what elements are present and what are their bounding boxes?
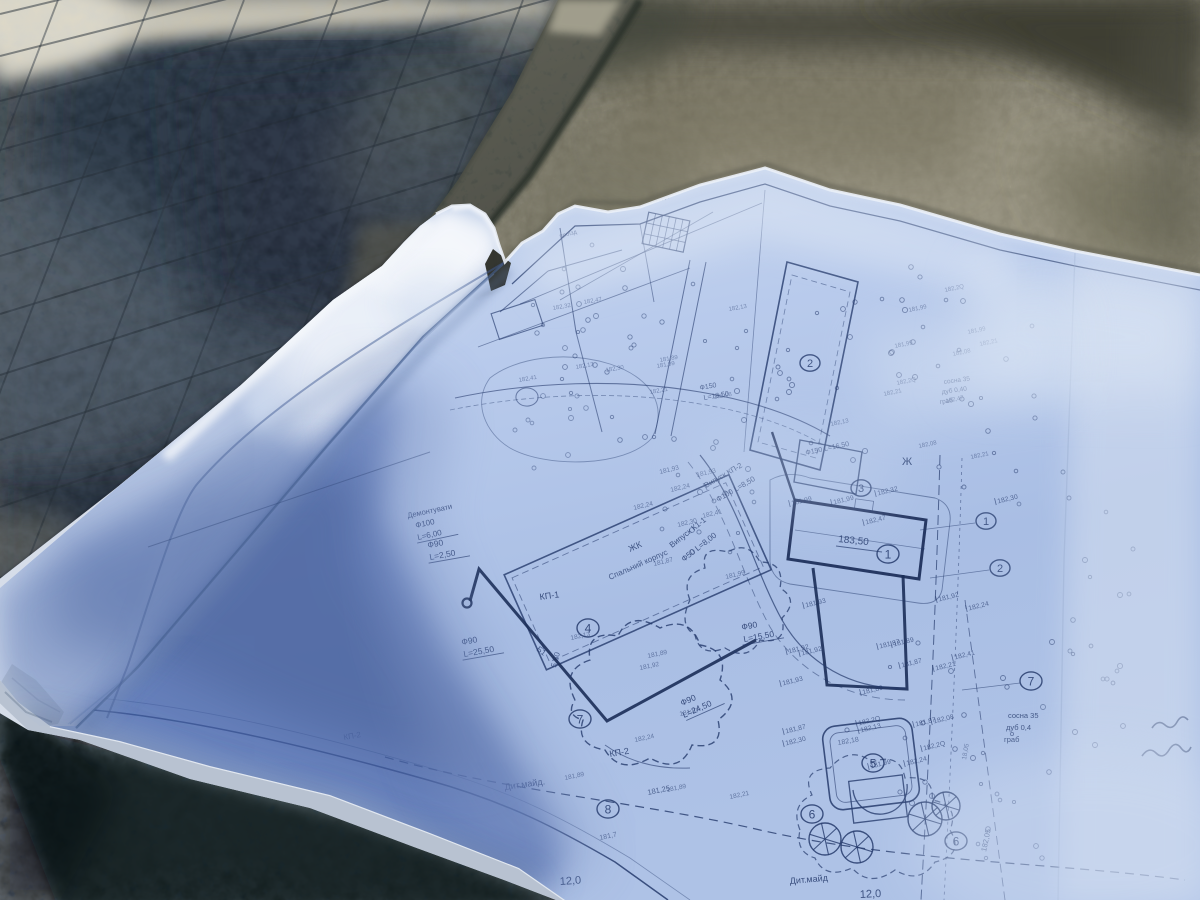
svg-text:граб: граб bbox=[1004, 735, 1019, 744]
svg-text:7: 7 bbox=[1028, 674, 1035, 688]
svg-text:2: 2 bbox=[807, 358, 813, 370]
svg-text:Ж: Ж bbox=[902, 456, 912, 468]
svg-text:сосна 35: сосна 35 bbox=[1008, 711, 1039, 720]
svg-text:12,0: 12,0 bbox=[860, 888, 882, 900]
svg-text:2: 2 bbox=[997, 563, 1003, 575]
svg-text:1: 1 bbox=[885, 547, 892, 561]
svg-text:6: 6 bbox=[809, 807, 816, 821]
svg-text:8: 8 bbox=[605, 802, 612, 816]
svg-text:7: 7 bbox=[577, 712, 584, 726]
svg-text:дуб 0,4: дуб 0,4 bbox=[1006, 723, 1031, 732]
svg-text:1: 1 bbox=[983, 516, 989, 528]
